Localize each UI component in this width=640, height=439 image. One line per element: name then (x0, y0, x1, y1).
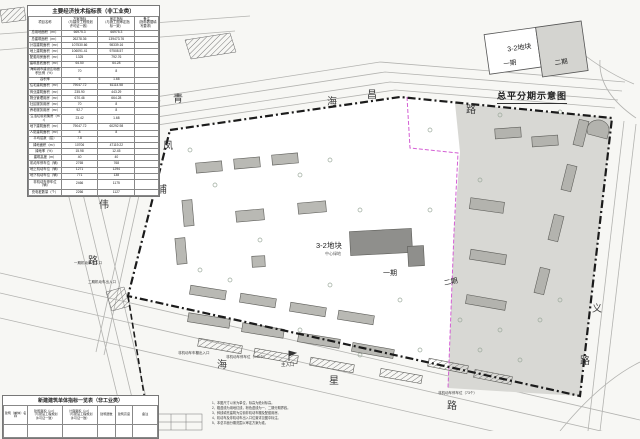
building-footprint (298, 201, 327, 214)
indicator-label: 海绵城市建设达标面积比例（%） (29, 67, 62, 77)
indicator-value: 2466 (61, 179, 97, 189)
unit-table-cell (28, 425, 63, 437)
road-name-wei-1: 伟 (99, 201, 109, 211)
indicator-label: 非机动车停车位（辆） (29, 179, 62, 189)
building-footprint (182, 200, 194, 227)
unit-table-col-header: 建筑高度 (115, 406, 133, 425)
unit-table-col-header: 建筑面积（m²） （与建设工程规划 许可证一致） (28, 406, 63, 425)
indicator-value: 1127 (98, 189, 135, 195)
inset-phase2-block (536, 21, 589, 77)
bike-parking-73-label: 非机动车停车位（73个） (438, 392, 477, 396)
indicator-value: 23.42 (61, 114, 97, 124)
main-table-col-header: 审定指标 （与施工图审定指 标一致） (98, 17, 135, 31)
indicator-value: 8 (98, 67, 135, 77)
building-footprint (175, 238, 187, 265)
main-table-title: 主要经济技术指标表（非工业类） (28, 6, 159, 16)
road-name-haixing-1: 海 (217, 361, 227, 371)
main-entrance-label: 主入口 (281, 363, 295, 368)
entrance-p1-label: 一期机动车出入口 (74, 262, 102, 266)
main-indicator-table: 主要经济技术指标表（非工业类） 项目名称方案指标 （与建设工程规划 许可证一致）… (27, 5, 160, 197)
unit-table-cell (98, 425, 116, 437)
main-table-col-header: 项目名称 (29, 17, 62, 31)
building-footprint (310, 357, 355, 373)
note-line: 5、本总平面分期范围以审定方案为准。 (212, 421, 464, 426)
building-footprint (349, 228, 412, 255)
unit-table-cell (63, 425, 98, 437)
indicator-value (135, 189, 159, 195)
unit-table-col-header: 建筑（单体）名称 (4, 406, 28, 425)
road-name-yi-1: 义 (592, 305, 602, 315)
road-name-haixing-2: 星 (329, 377, 339, 387)
bike-shed-label: 非机动车车棚出入口 (178, 352, 210, 356)
road-name-haichang-2: 昌 (367, 91, 377, 101)
unit-table-header-row: 建筑（单体）名称建筑面积（m²） （与建设工程规划 许可证一致）计容面积（m²）… (4, 406, 158, 425)
table-row (4, 425, 158, 437)
indicator-label: 充电桩数量（个） (29, 189, 62, 195)
indicator-value: 1.68 (98, 114, 135, 124)
main-table-col-header: 备注 （指标数据填 写要求） (135, 17, 159, 31)
unit-indicator-table: 新建建筑单体指标一览表（非工业类） 建筑（单体）名称建筑面积（m²） （与建设工… (2, 395, 159, 439)
indicator-value: 1175 (98, 179, 135, 189)
main-table-header-row: 项目名称方案指标 （与建设工程规划 许可证一致）审定指标 （与施工图审定指 标一… (29, 17, 159, 31)
drawing-notes: 1、本图尺寸以米为单位，标高为绝对标高。2、粗虚线为用地红线，粉色虚线为一、二期… (212, 401, 464, 426)
plan-block-label: 3-2地块 (316, 242, 342, 250)
main-table-col-header: 方案指标 （与建设工程规划 许可证一致） (61, 17, 97, 31)
unit-table-title: 新建建筑单体指标一览表（非工业类） (3, 396, 158, 405)
road-name-qingfengpu-2: 凤 (163, 142, 173, 152)
building-footprint (407, 246, 424, 267)
road-name-haichang-1: 海 (327, 98, 337, 108)
indicator-value (135, 114, 159, 124)
unit-table-col-header: 备注 (133, 406, 158, 425)
building-footprint (495, 127, 522, 139)
unit-table-cell (133, 425, 158, 437)
road-name-yi-2: 路 (580, 357, 590, 367)
entrance-p2-label: 二期机动车出入口 (88, 281, 116, 285)
unit-table-cell (115, 425, 133, 437)
bike-parking-140-label: 非机动车停车位（140个） (226, 356, 267, 360)
building-footprint (196, 161, 223, 173)
building-footprint (234, 157, 261, 169)
building-footprint (272, 153, 299, 165)
indicator-label: 生活垃圾收集房（m²） (29, 114, 62, 124)
road-name-haichang-3: 路 (466, 106, 476, 116)
road-name-qingfengpu-1: 青 (173, 95, 183, 105)
mini-grid (156, 414, 202, 430)
plan-phase1-label: 一期 (383, 270, 397, 277)
building-footprint (532, 135, 559, 147)
unit-table-col-header: 建筑层数 (98, 406, 116, 425)
building-footprint (252, 256, 266, 268)
unit-table-col-header: 计容面积（m²） （与建设工程规划 许可证一致） (63, 406, 98, 425)
table-row: 非机动车停车位（辆）24661175 (29, 179, 159, 189)
indicator-value: 70 (61, 67, 97, 77)
inset-caption: 总平分期示意图 (497, 89, 567, 104)
unit-table-cell (4, 425, 28, 437)
table-row: 海绵城市建设达标面积比例（%）708 (29, 67, 159, 77)
table-row: 生活垃圾收集房（m²）23.421.68 (29, 114, 159, 124)
building-footprint (236, 209, 265, 222)
indicator-value: 2266 (61, 189, 97, 195)
indicator-value (135, 179, 159, 189)
plan-green-label: 中心绿地 (325, 252, 341, 256)
indicator-value (135, 67, 159, 77)
site-plan-sheet: { "colors":{"paper":"#f7f7f4","boundary"… (0, 0, 640, 431)
table-row: 充电桩数量（个）22661127 (29, 189, 159, 195)
